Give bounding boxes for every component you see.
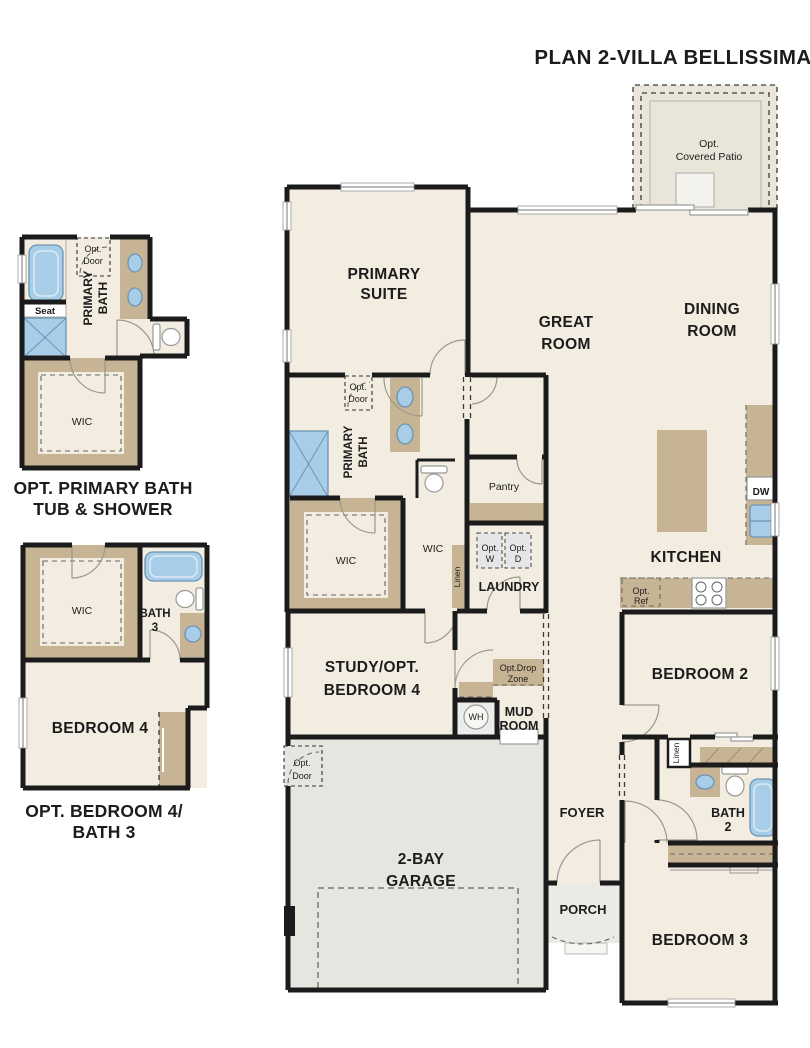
drop-zone-bench-2 (459, 682, 493, 698)
stove-icon (692, 578, 726, 608)
porch-label: PORCH (560, 902, 607, 917)
detail-a-caption-1: OPT. PRIMARY BATH (13, 478, 192, 498)
detail-a-window-left (18, 255, 26, 283)
linen2-label: Linen (671, 742, 681, 763)
bedroom3-label: BEDROOM 3 (652, 932, 749, 949)
opt-d-label-1: Opt. (509, 543, 526, 553)
floorplan-page: Opt. Covered Patio (0, 0, 810, 1048)
primary-bath-label-1: PRIMARY (343, 425, 355, 478)
opt-ref-label-1: Opt. (632, 586, 649, 596)
pantry-label: Pantry (489, 481, 520, 493)
mudroom-label-1: MUD (505, 705, 533, 719)
detail-a-caption-2: TUB & SHOWER (33, 499, 173, 519)
detail-a-wic-label: WIC (72, 416, 93, 428)
opt-d-label-2: D (515, 554, 522, 564)
dropzone-label-2: Zone (508, 674, 529, 684)
detail-b-sink-icon (185, 626, 201, 642)
detail-b-toilet-icon (176, 588, 203, 610)
opt-door-garage: Opt. Door (284, 746, 322, 786)
detail-opt-bedroom4-bath3: WIC BATH 3 BEDROOM 4 OPT. BEDROOM 4/ BAT… (19, 545, 207, 842)
laundry-label: LAUNDRY (479, 580, 540, 594)
opt-door-garage-label-1: Opt. (293, 758, 310, 768)
dropzone-label-1: Opt.Drop (500, 663, 537, 673)
detail-a-shower-icon (24, 318, 66, 357)
wic2-label: WIC (423, 543, 444, 555)
opt-ref-label-2: Ref (634, 596, 649, 606)
dw-label: DW (753, 487, 770, 498)
detail-a-sink-icon-1 (128, 254, 142, 272)
great-room-label-2: ROOM (541, 336, 590, 353)
detail-b-closet (159, 712, 186, 786)
primary-suite-label-2: SUITE (360, 286, 407, 303)
wic1-label: WIC (336, 555, 357, 567)
foyer-label: FOYER (560, 805, 605, 820)
detail-opt-primary-bath: Seat Opt. Door PRIMARY BATH WI (13, 237, 192, 519)
patio-step (676, 173, 714, 207)
window-dining-right (771, 284, 779, 344)
opt-door-garage-label-2: Door (292, 771, 312, 781)
detail-a-tub-icon (29, 245, 63, 301)
garage-label-2: GARAGE (386, 873, 456, 890)
bath-sink-icon-2 (397, 424, 413, 444)
primary-bath-label-2: BATH (358, 436, 370, 467)
detail-a-opt-door-label-1: Opt. (84, 244, 101, 254)
opt-w-label-2: W (486, 554, 495, 564)
detail-b-wic-label: WIC (72, 605, 93, 617)
study-label-2: BEDROOM 4 (324, 682, 421, 699)
kitchen-label: KITCHEN (651, 549, 722, 566)
detail-a-opt-door: Opt. Door (77, 238, 110, 276)
opt-w-label-1: Opt. (481, 543, 498, 553)
detail-a-seat: Seat (24, 303, 66, 317)
window-great-top (518, 206, 617, 214)
porch-step (565, 943, 607, 954)
bath-sink-icon-1 (397, 387, 413, 407)
garage-label-1: 2-BAY (398, 851, 445, 868)
bath2-sink-icon (696, 775, 714, 789)
great-room-label-1: GREAT (539, 314, 594, 331)
detail-b-window-left (19, 698, 27, 748)
study-label-1: STUDY/OPT. (325, 659, 419, 676)
bath2-tub-icon (750, 779, 776, 836)
detail-b-bedroom-label: BEDROOM 4 (52, 720, 149, 737)
wh-label: WH (469, 712, 484, 722)
dining-room-label-2: ROOM (687, 323, 736, 340)
opt-door-suite-label-1: Opt. (349, 382, 366, 392)
mudroom-label-2: ROOM (500, 719, 539, 733)
detail-b-tub-icon (145, 552, 202, 581)
detail-b-wic-inner (40, 558, 124, 646)
window-suite-left-2 (283, 330, 291, 362)
bath2-label-1: BATH (711, 806, 745, 820)
detail-b-bath-label-1: BATH (139, 608, 170, 620)
detail-a-bath-label: BATH (96, 282, 110, 314)
bedroom2-closet (700, 747, 776, 763)
opt-door-suite: Opt. Door (345, 376, 372, 410)
window-suite-left-1 (283, 202, 291, 230)
patio-label-2: Covered Patio (676, 151, 743, 163)
primary-shower-icon (289, 431, 328, 497)
detail-a-counter (120, 239, 150, 319)
laundry-cabinets (470, 503, 544, 521)
window-study-left (284, 648, 292, 697)
detail-b-caption-2: BATH 3 (72, 822, 135, 842)
detail-a-sink-icon-2 (128, 288, 142, 306)
detail-b-caption-1: OPT. BEDROOM 4/ (25, 801, 183, 821)
plan-title: PLAN 2-VILLA BELLISSIMA (534, 46, 810, 69)
window-bedroom2-right (771, 637, 779, 690)
primary-suite-label-1: PRIMARY (347, 266, 420, 283)
detail-b-bath-label-2: 3 (152, 622, 158, 634)
seat-label: Seat (35, 306, 56, 317)
kitchen-sink-icon (750, 505, 773, 537)
floorplan-drawing: Opt. Covered Patio (0, 0, 810, 1048)
linen1-label: Linen (452, 566, 462, 587)
opt-door-suite-label-2: Door (348, 394, 368, 404)
window-kitchen-right (771, 503, 779, 536)
bedroom2-label: BEDROOM 2 (652, 666, 749, 683)
bath2-label-2: 2 (725, 820, 732, 834)
kitchen-island (657, 430, 707, 532)
detail-a-opt-door-label-2: Door (83, 256, 103, 266)
dining-room-label-1: DINING (684, 301, 740, 318)
window-suite-top (341, 183, 414, 191)
patio-label-1: Opt. (699, 138, 719, 150)
window-bedroom3-bottom (668, 999, 735, 1007)
detail-a-primary-label: PRIMARY (81, 271, 95, 326)
